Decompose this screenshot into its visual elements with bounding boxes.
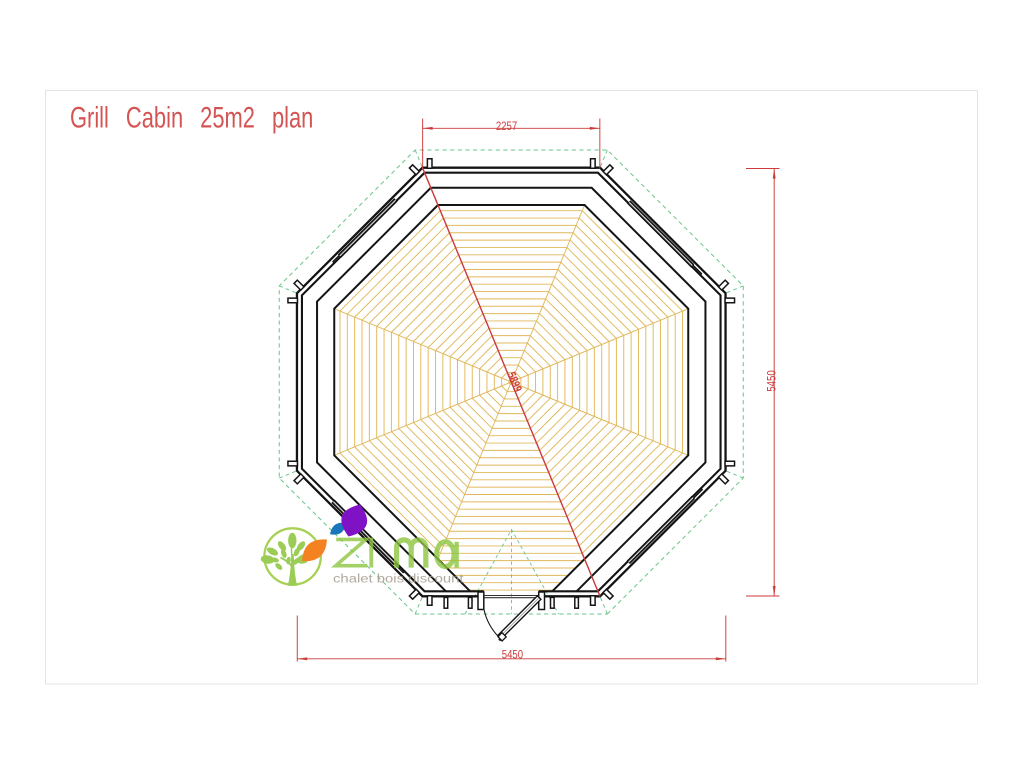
svg-text:5450: 5450: [766, 370, 779, 391]
svg-text:2257: 2257: [496, 120, 517, 133]
svg-text:chalet bois discount: chalet bois discount: [333, 574, 465, 586]
svg-text:Grill Cabin 25m2 plan: Grill Cabin 25m2 plan: [70, 100, 313, 134]
svg-text:5450: 5450: [502, 648, 523, 661]
